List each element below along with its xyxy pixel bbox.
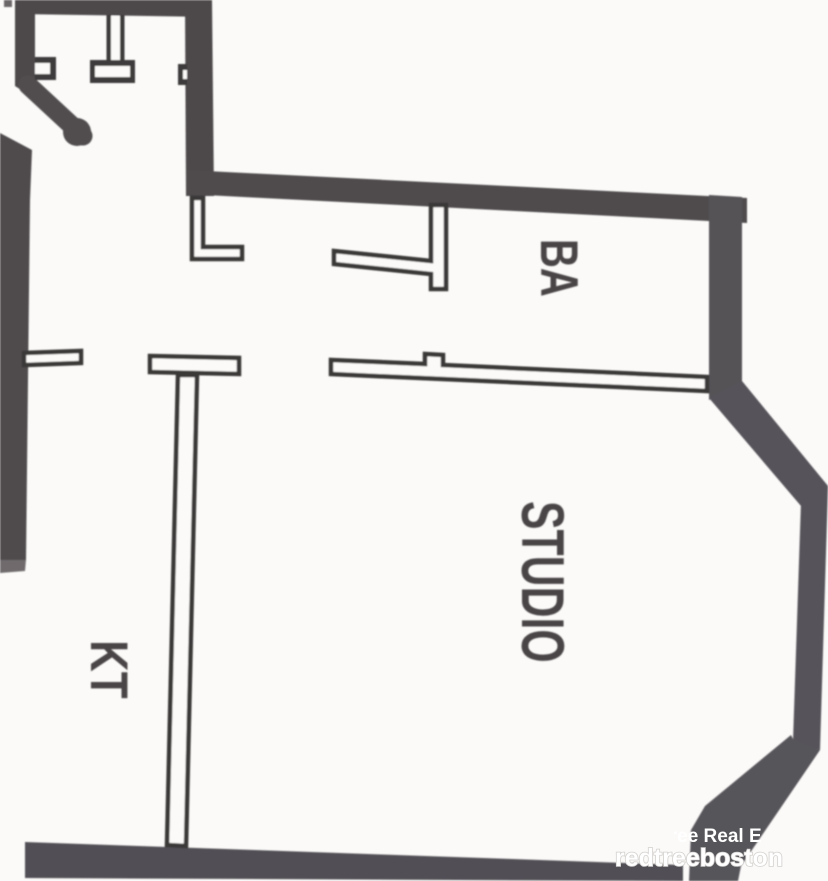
svg-text:redtreeboston: redtreeboston [615, 844, 783, 872]
svg-text:KT: KT [79, 640, 138, 699]
svg-text:STUDIO: STUDIO [508, 501, 575, 663]
svg-text:BA: BA [530, 239, 589, 297]
